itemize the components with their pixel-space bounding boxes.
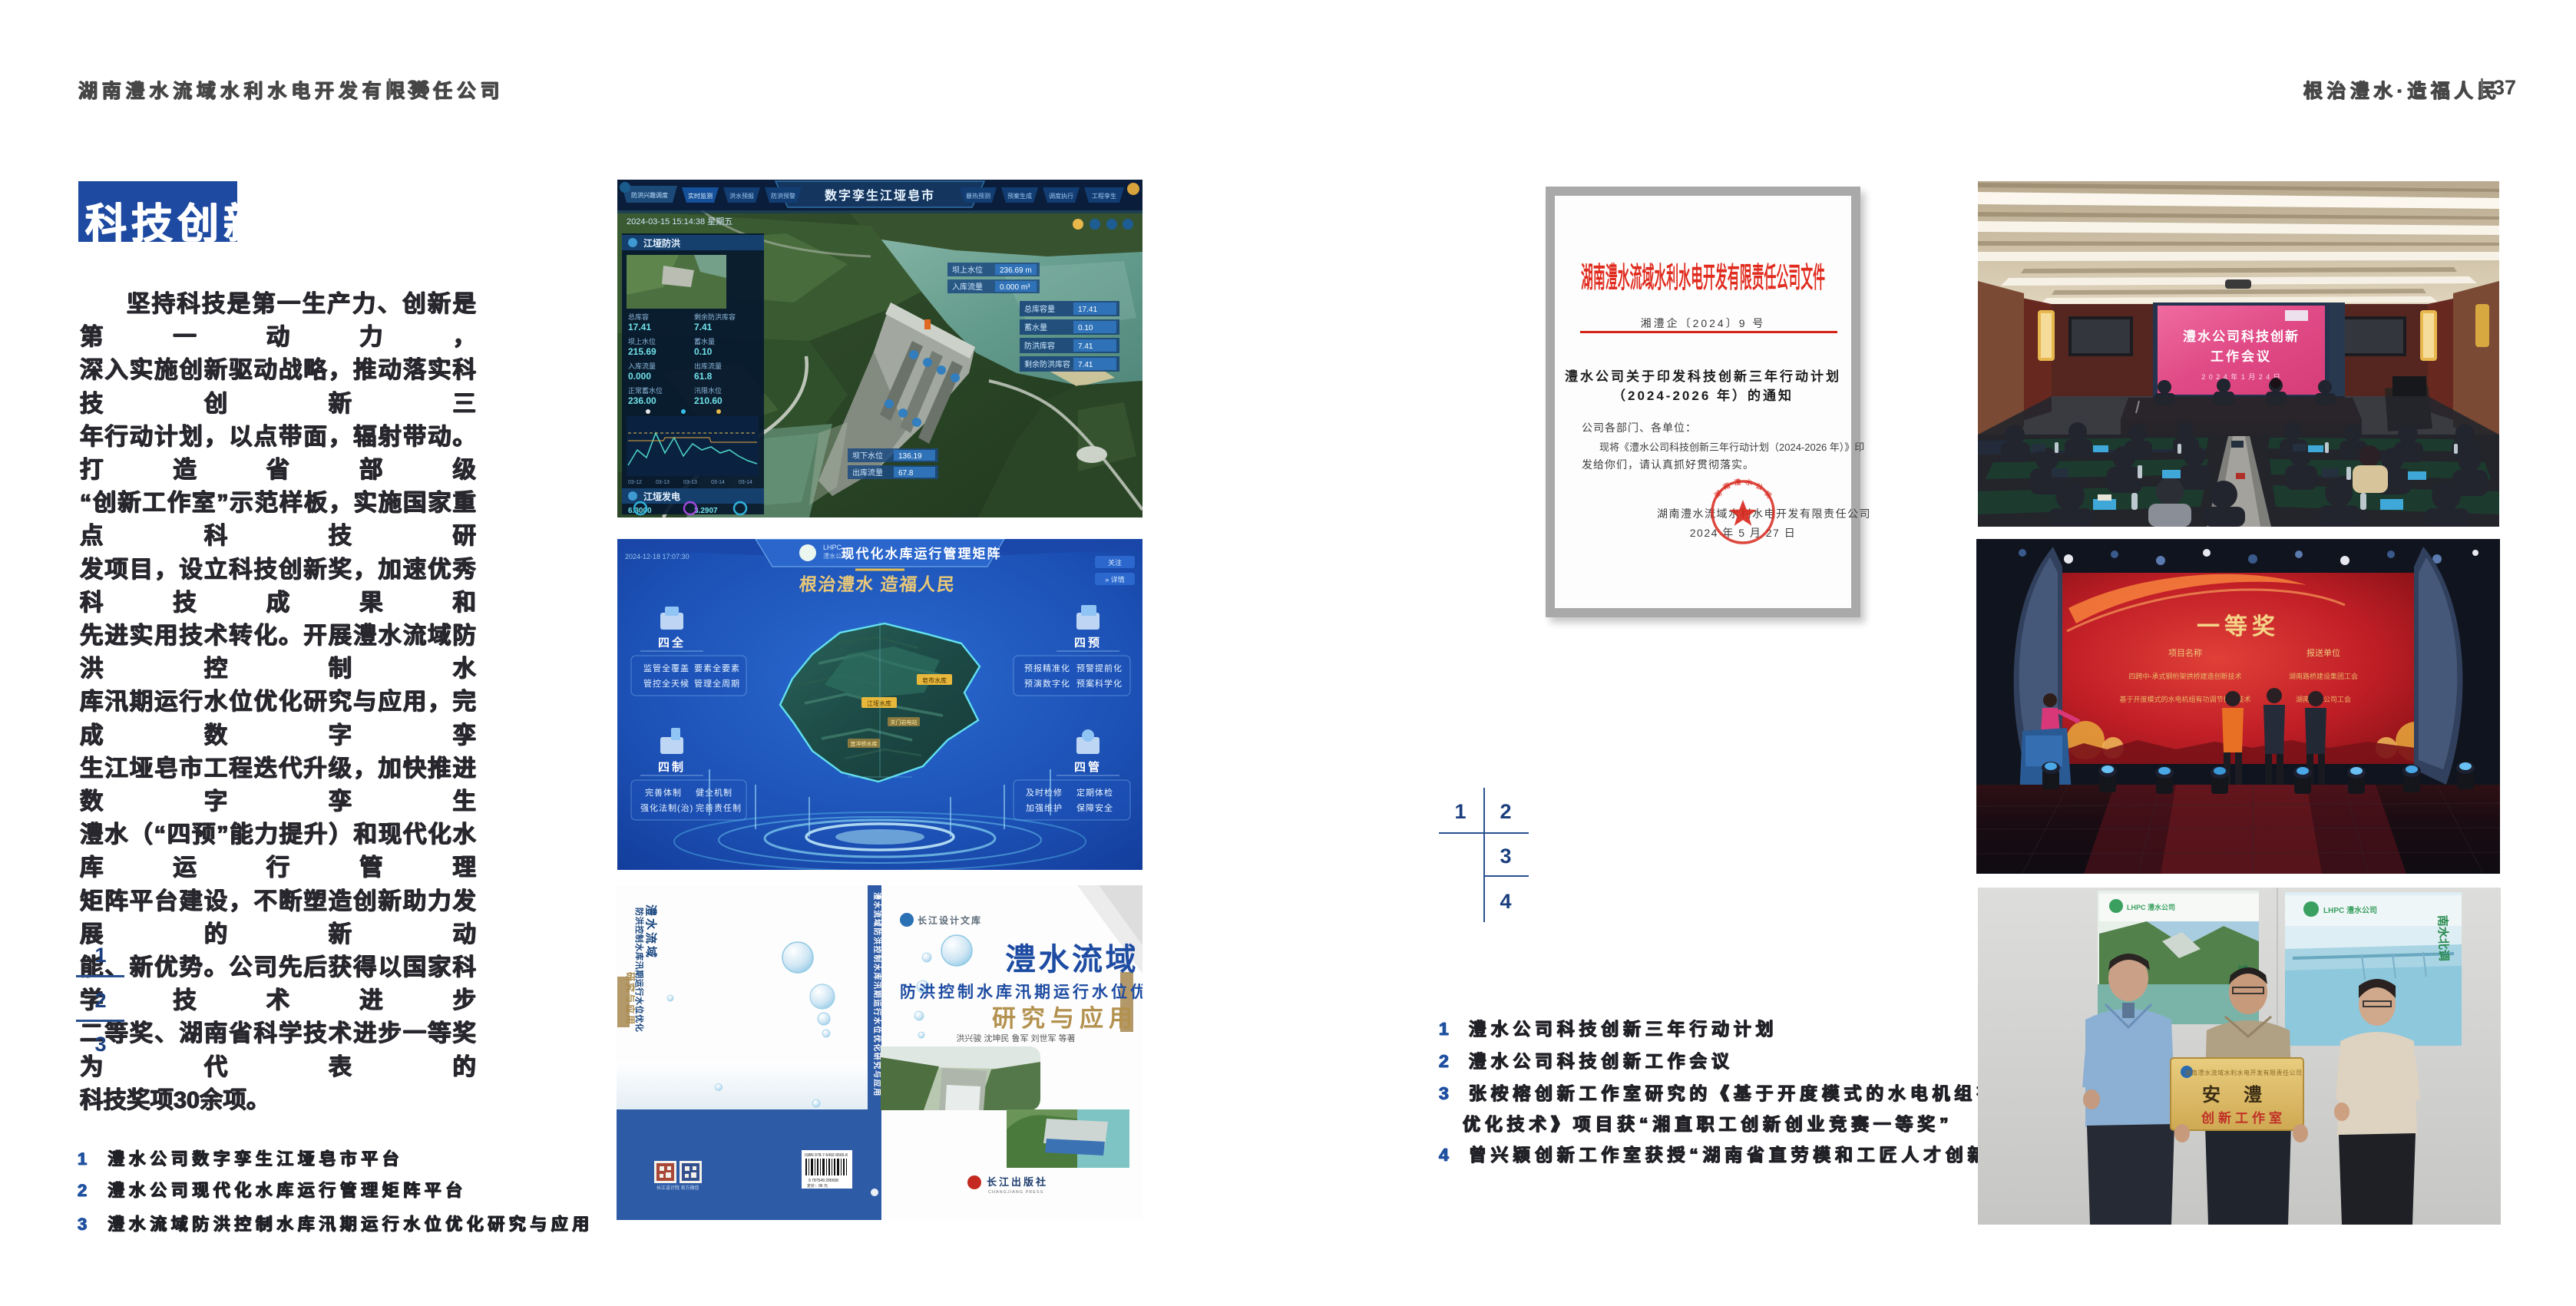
svg-text:总库容: 总库容 bbox=[628, 312, 649, 321]
svg-text:江垭防洪: 江垭防洪 bbox=[643, 237, 680, 249]
svg-text:03-14: 03-14 bbox=[739, 480, 752, 485]
svg-text:四预: 四预 bbox=[1074, 636, 1102, 650]
svg-text:创新工作室: 创新工作室 bbox=[2201, 1110, 2286, 1126]
svg-text:236.00: 236.00 bbox=[628, 395, 656, 406]
svg-text:蓄水量: 蓄水量 bbox=[1024, 323, 1047, 332]
svg-text:江垭发电: 江垭发电 bbox=[643, 491, 680, 502]
svg-text:» 详情: » 详情 bbox=[1105, 575, 1125, 584]
svg-text:工作会议: 工作会议 bbox=[2211, 349, 2272, 364]
svg-text:现代化水库运行管理矩阵: 现代化水库运行管理矩阵 bbox=[842, 546, 1002, 561]
svg-text:湖南路桥建设集团工会: 湖南路桥建设集团工会 bbox=[2289, 672, 2358, 680]
svg-text:四管: 四管 bbox=[1074, 760, 1102, 774]
svg-text:宜冲桥水库: 宜冲桥水库 bbox=[851, 740, 878, 747]
svg-text:17.41: 17.41 bbox=[628, 322, 651, 332]
svg-text:加强维护: 加强维护 bbox=[1026, 802, 1063, 813]
svg-text:0.10: 0.10 bbox=[694, 346, 713, 357]
svg-text:7.41: 7.41 bbox=[1078, 342, 1093, 351]
svg-text:湖南澧水流域水利水电开发有限责任公司文件: 湖南澧水流域水利水电开发有限责任公司文件 bbox=[1581, 262, 1825, 293]
svg-text:03-13: 03-13 bbox=[683, 480, 697, 485]
svg-text:汛限水位: 汛限水位 bbox=[694, 386, 722, 395]
svg-text:正常蓄水位: 正常蓄水位 bbox=[628, 386, 663, 395]
svg-text:保障安全: 保障安全 bbox=[1076, 802, 1113, 813]
svg-text:四跨中-承式钢桁架拱桥建造创新技术: 四跨中-承式钢桁架拱桥建造创新技术 bbox=[2129, 672, 2242, 680]
svg-text:预警提前化: 预警提前化 bbox=[1076, 663, 1123, 673]
svg-text:管控全天候: 管控全天候 bbox=[643, 678, 689, 689]
svg-text:7.41: 7.41 bbox=[1078, 361, 1093, 369]
svg-text:湖南澧水流域水利水电开发有限责任公司: 湖南澧水流域水利水电开发有限责任公司 bbox=[2185, 1069, 2303, 1076]
svg-text:研究与应用: 研究与应用 bbox=[992, 1005, 1138, 1032]
svg-text:洪兴骏 沈坤民 鲁军 刘世军 等著: 洪兴骏 沈坤民 鲁军 刘世军 等著 bbox=[956, 1033, 1075, 1043]
svg-text:入库流量: 入库流量 bbox=[952, 282, 983, 292]
svg-text:210.60: 210.60 bbox=[694, 395, 723, 406]
svg-text:一等奖: 一等奖 bbox=[2197, 613, 2280, 640]
svg-text:强化法制(治): 强化法制(治) bbox=[640, 802, 693, 813]
svg-text:四全: 四全 bbox=[658, 636, 686, 650]
svg-text:实时监测: 实时监测 bbox=[688, 192, 713, 200]
svg-text:洪水预报: 洪水预报 bbox=[729, 192, 754, 200]
svg-text:预案科学化: 预案科学化 bbox=[1076, 678, 1123, 689]
svg-text:暴热预测: 暴热预测 bbox=[966, 192, 990, 200]
svg-text:2024-12-18 17:07:30: 2024-12-18 17:07:30 bbox=[625, 553, 689, 560]
svg-text:坝上水位: 坝上水位 bbox=[628, 337, 656, 346]
svg-text:江垭水库: 江垭水库 bbox=[867, 699, 891, 707]
svg-text:湖南澧水公司工会: 湖南澧水公司工会 bbox=[2296, 695, 2351, 703]
svg-text:236.69 m: 236.69 m bbox=[1000, 266, 1032, 275]
svg-text:136.19: 136.19 bbox=[898, 452, 922, 461]
svg-text:剩余防洪库容: 剩余防洪库容 bbox=[694, 312, 736, 321]
svg-text:工程孪生: 工程孪生 bbox=[1092, 192, 1116, 200]
svg-text:0.000 m³: 0.000 m³ bbox=[1000, 283, 1030, 292]
svg-text:调度执行: 调度执行 bbox=[1049, 192, 1073, 200]
svg-text:2024-03-15 15:14:38 星期五: 2024-03-15 15:14:38 星期五 bbox=[627, 217, 732, 226]
svg-text:剩余防洪库容: 剩余防洪库容 bbox=[1024, 359, 1070, 369]
svg-text:3.2907: 3.2907 bbox=[694, 507, 718, 515]
svg-text:03-14: 03-14 bbox=[711, 480, 725, 485]
svg-text:四制: 四制 bbox=[658, 760, 686, 774]
svg-text:健全机制: 健全机制 bbox=[696, 787, 732, 798]
svg-text:防洪预警: 防洪预警 bbox=[771, 192, 795, 200]
svg-text:0.000: 0.000 bbox=[628, 371, 651, 382]
svg-text:研究与应用: 研究与应用 bbox=[625, 972, 637, 1026]
svg-text:17.41: 17.41 bbox=[1078, 306, 1097, 314]
svg-text:预演数字化: 预演数字化 bbox=[1024, 678, 1070, 689]
svg-text:澧水流域: 澧水流域 bbox=[1005, 943, 1139, 977]
svg-text:215.69: 215.69 bbox=[628, 346, 656, 357]
svg-text:长江出版社: 长江出版社 bbox=[987, 1176, 1048, 1188]
svg-text:坝上水位: 坝上水位 bbox=[952, 265, 983, 275]
svg-text:预案生成: 预案生成 bbox=[1007, 192, 1032, 200]
svg-text:定价：96 元: 定价：96 元 bbox=[807, 1183, 828, 1189]
svg-text:预报精准化: 预报精准化 bbox=[1024, 663, 1070, 673]
svg-text:总库容量: 总库容量 bbox=[1024, 304, 1055, 314]
svg-text:皂市水库: 皂市水库 bbox=[922, 676, 947, 684]
svg-text:澧水公司科技创新: 澧水公司科技创新 bbox=[2183, 329, 2300, 344]
svg-text:定期体检: 定期体检 bbox=[1076, 787, 1113, 798]
svg-text:03-13: 03-13 bbox=[656, 480, 670, 485]
svg-text:关注: 关注 bbox=[1108, 558, 1122, 567]
svg-text:LHPC 澧水公司: LHPC 澧水公司 bbox=[2127, 903, 2175, 911]
svg-text:出库流量: 出库流量 bbox=[852, 468, 883, 478]
svg-text:关门岩电站: 关门岩电站 bbox=[891, 719, 918, 726]
svg-text:防洪控制水库汛期运行水位优化: 防洪控制水库汛期运行水位优化 bbox=[900, 983, 1143, 1001]
svg-text:67.8: 67.8 bbox=[898, 469, 914, 478]
svg-text:要素全要素: 要素全要素 bbox=[694, 663, 740, 673]
svg-text:61.8: 61.8 bbox=[694, 371, 713, 382]
svg-text:安澧: 安澧 bbox=[2202, 1084, 2285, 1106]
svg-text:9 787549 295658: 9 787549 295658 bbox=[809, 1179, 838, 1183]
svg-text:出库流量: 出库流量 bbox=[694, 362, 722, 370]
svg-text:根治澧水 造福人民: 根治澧水 造福人民 bbox=[799, 574, 957, 594]
svg-text:CHANGJIANG PRESS: CHANGJIANG PRESS bbox=[988, 1190, 1043, 1195]
svg-text:03-12: 03-12 bbox=[628, 480, 642, 485]
svg-text:入库流量: 入库流量 bbox=[628, 362, 656, 370]
svg-text:完善体制: 完善体制 bbox=[645, 787, 682, 798]
svg-text:项目名称: 项目名称 bbox=[2168, 647, 2202, 658]
svg-text:7.41: 7.41 bbox=[694, 322, 713, 332]
svg-text:澧水流域: 澧水流域 bbox=[644, 904, 658, 960]
svg-text:管理全周期: 管理全周期 bbox=[694, 678, 740, 689]
svg-text:LHPC: LHPC bbox=[823, 544, 842, 551]
svg-text:南水北调: 南水北调 bbox=[2435, 915, 2451, 962]
svg-text:数字孪生江垭皂市: 数字孪生江垭皂市 bbox=[825, 188, 935, 203]
svg-text:澧: 澧 bbox=[1733, 478, 1741, 487]
svg-text:防洪库容: 防洪库容 bbox=[1024, 341, 1055, 351]
svg-text:及时检修: 及时检修 bbox=[1026, 787, 1063, 798]
svg-text:ISBN 978-7-5492-9565-8: ISBN 978-7-5492-9565-8 bbox=[805, 1153, 848, 1158]
svg-text:水: 水 bbox=[1745, 478, 1754, 487]
svg-text:蓄水量: 蓄水量 bbox=[694, 337, 715, 346]
svg-text:长江设计院 官方微信: 长江设计院 官方微信 bbox=[656, 1185, 699, 1191]
svg-text:坝下水位: 坝下水位 bbox=[852, 451, 883, 461]
svg-text:完善责任制: 完善责任制 bbox=[696, 802, 742, 813]
svg-text:LHPC 澧水公司: LHPC 澧水公司 bbox=[2323, 905, 2377, 915]
svg-text:监管全覆盖: 监管全覆盖 bbox=[643, 663, 689, 673]
svg-text:长江设计文库: 长江设计文库 bbox=[918, 914, 982, 926]
svg-text:防洪兴趣调度: 防洪兴趣调度 bbox=[631, 191, 668, 199]
svg-text:2 0 2 4 年 1 月 2 4 日: 2 0 2 4 年 1 月 2 4 日 bbox=[2201, 372, 2281, 381]
svg-text:报送单位: 报送单位 bbox=[2306, 647, 2340, 658]
svg-text:0.10: 0.10 bbox=[1078, 324, 1093, 332]
